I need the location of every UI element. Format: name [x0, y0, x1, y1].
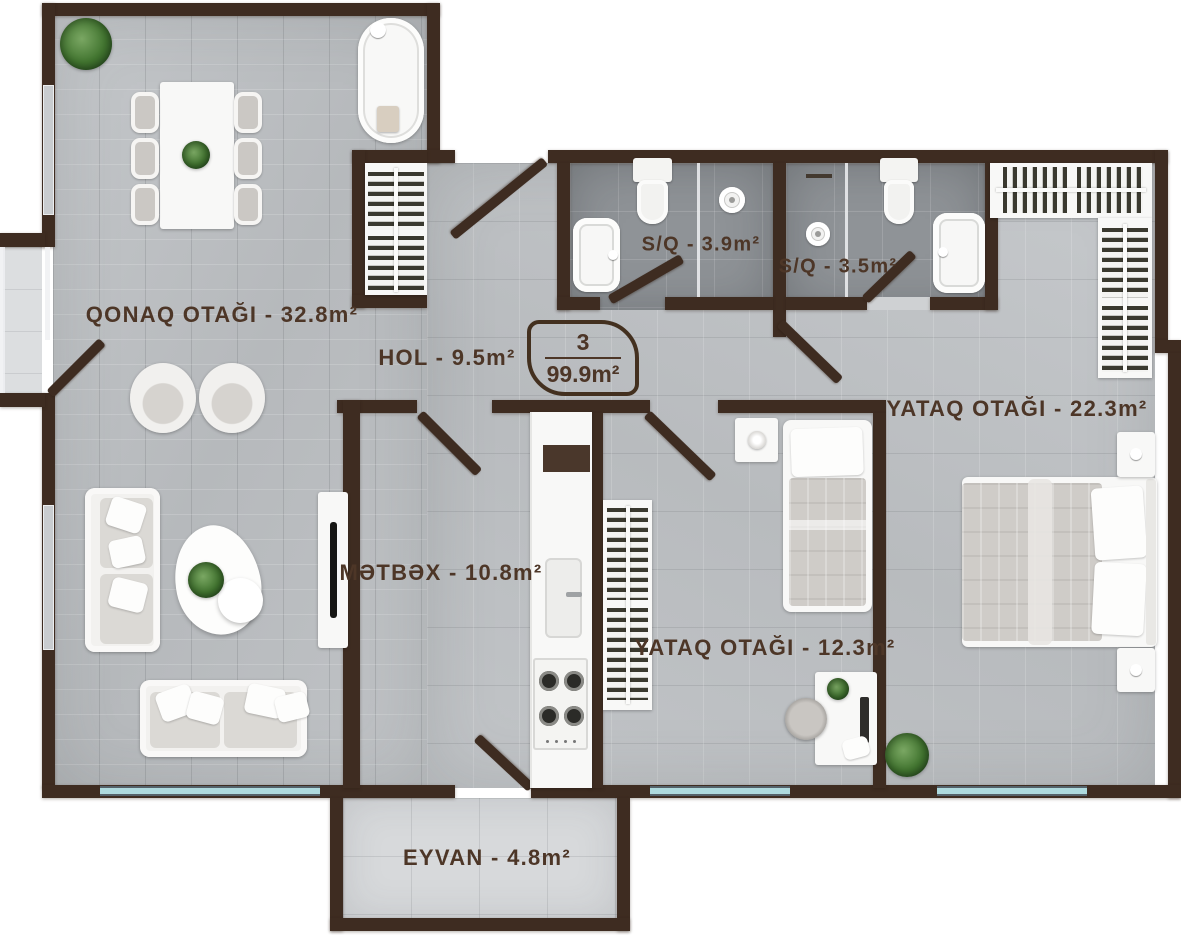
- window-bedroom-large: [937, 786, 1087, 796]
- balcony-wall-bottom: [330, 918, 630, 931]
- stove-burner: [564, 706, 584, 726]
- window-left-1: [43, 85, 54, 215]
- armchair: [130, 363, 196, 433]
- badge-divider: [545, 357, 621, 359]
- wall-bathroom1-bottom-a: [557, 297, 600, 310]
- wardrobe-rail: [626, 506, 630, 704]
- armchair: [199, 363, 265, 433]
- wardrobe-rail: [996, 188, 1146, 192]
- wall-top-middle-a: [427, 150, 455, 163]
- stove-burner: [539, 706, 559, 726]
- corner-plant: [60, 18, 112, 70]
- basin-faucet: [608, 250, 618, 260]
- closet-rail: [394, 168, 398, 292]
- closet-frame-bottom: [352, 295, 427, 308]
- room-label-balcony: EYVAN - 4.8m²: [403, 845, 571, 871]
- dining-chair: [234, 92, 262, 133]
- stove-burner: [564, 671, 584, 691]
- shower-fixture: [806, 174, 832, 178]
- stove-burner: [539, 671, 559, 691]
- shower-head: [806, 222, 830, 246]
- tub-tray: [377, 106, 399, 132]
- basin-faucet: [938, 247, 948, 257]
- desk-chair: [785, 698, 827, 740]
- dining-chair: [234, 184, 262, 225]
- toilet-bowl: [637, 180, 668, 224]
- tub-faucet: [370, 22, 386, 38]
- bathroom-2-doorway-tile: [867, 297, 930, 310]
- nightstand-knob: [1130, 664, 1142, 676]
- toilet-bowl: [884, 180, 914, 224]
- closet-frame-left: [352, 150, 365, 308]
- room-label-bedroom-large: YATAQ OTAĞI - 22.3m²: [886, 396, 1147, 422]
- toilet-tank: [880, 158, 918, 182]
- room-label-bathroom-2: S/Q - 3.5m²: [779, 256, 898, 279]
- unit-number: 3: [577, 331, 590, 354]
- shower-glass: [697, 163, 700, 297]
- desk-plant: [827, 678, 849, 700]
- shower-head: [719, 187, 745, 213]
- blanket-fold: [1028, 479, 1052, 645]
- unit-area-badge: 3 99.9m²: [527, 320, 639, 396]
- coffee-table-plant: [188, 562, 224, 598]
- window-bedroom-small: [650, 786, 790, 796]
- wall-right-step: [1155, 340, 1181, 353]
- kitchen-cabinet-dark: [543, 445, 590, 472]
- bay-window-floor: [3, 247, 42, 393]
- dining-chair: [131, 92, 159, 133]
- stove: [533, 658, 588, 750]
- sink-faucet: [566, 592, 582, 597]
- room-label-kitchen: MƏTBƏX - 10.8m²: [339, 560, 542, 586]
- bedroom-plant: [885, 733, 929, 777]
- wall-right-lower: [1168, 353, 1181, 798]
- wall-bathroom1-left: [557, 163, 570, 310]
- dining-chair: [131, 184, 159, 225]
- room-label-hall: HOL - 9.5m²: [378, 345, 515, 371]
- headboard: [1146, 479, 1156, 645]
- balcony-wall-right: [617, 798, 630, 931]
- wall-mid-c: [718, 400, 886, 413]
- blanket-fold: [789, 520, 866, 530]
- balcony-wall-left: [330, 798, 343, 931]
- bed-blanket: [789, 478, 866, 606]
- wall-niche-right: [427, 3, 440, 163]
- bay-cap-top: [0, 233, 45, 247]
- window-living: [100, 786, 320, 796]
- bed-pillow: [1091, 562, 1147, 637]
- toilet-tank: [633, 158, 672, 182]
- unit-total-area: 99.9m²: [547, 363, 620, 386]
- bed-pillow: [790, 427, 864, 477]
- bay-outer-glass: [0, 247, 5, 393]
- coffee-table-round: [218, 578, 263, 623]
- room-label-bathroom-1: S/Q - 3.9m²: [642, 234, 761, 257]
- wall-bathroom1-bottom-b: [665, 297, 773, 310]
- dining-chair: [131, 138, 159, 179]
- bed-pillow: [1091, 485, 1148, 560]
- nightstand-knob: [1130, 448, 1142, 460]
- bay-cap-bottom: [0, 393, 45, 407]
- dining-table-plant: [182, 141, 210, 169]
- room-label-living: QONAQ OTAĞI - 32.8m²: [86, 302, 359, 328]
- wardrobe-rail: [1123, 224, 1127, 372]
- tv: [330, 522, 337, 618]
- wall-bathroom-divider: [773, 163, 786, 337]
- window-left-2: [43, 505, 54, 650]
- stove-knobs: [546, 740, 549, 743]
- wall-bathroom2-bottom-a: [786, 297, 867, 310]
- room-label-bedroom-small: YATAQ OTAĞI - 12.3m²: [634, 635, 895, 661]
- kitchen-sink: [545, 558, 582, 638]
- bay-inner-glass: [45, 247, 50, 340]
- dining-chair: [234, 138, 262, 179]
- nightstand-lamp: [748, 431, 766, 449]
- wall-right-upper: [1155, 150, 1168, 340]
- wall-top: [42, 3, 440, 16]
- floor-plan: QONAQ OTAĞI - 32.8m² HOL - 9.5m² S/Q - 3…: [0, 0, 1181, 935]
